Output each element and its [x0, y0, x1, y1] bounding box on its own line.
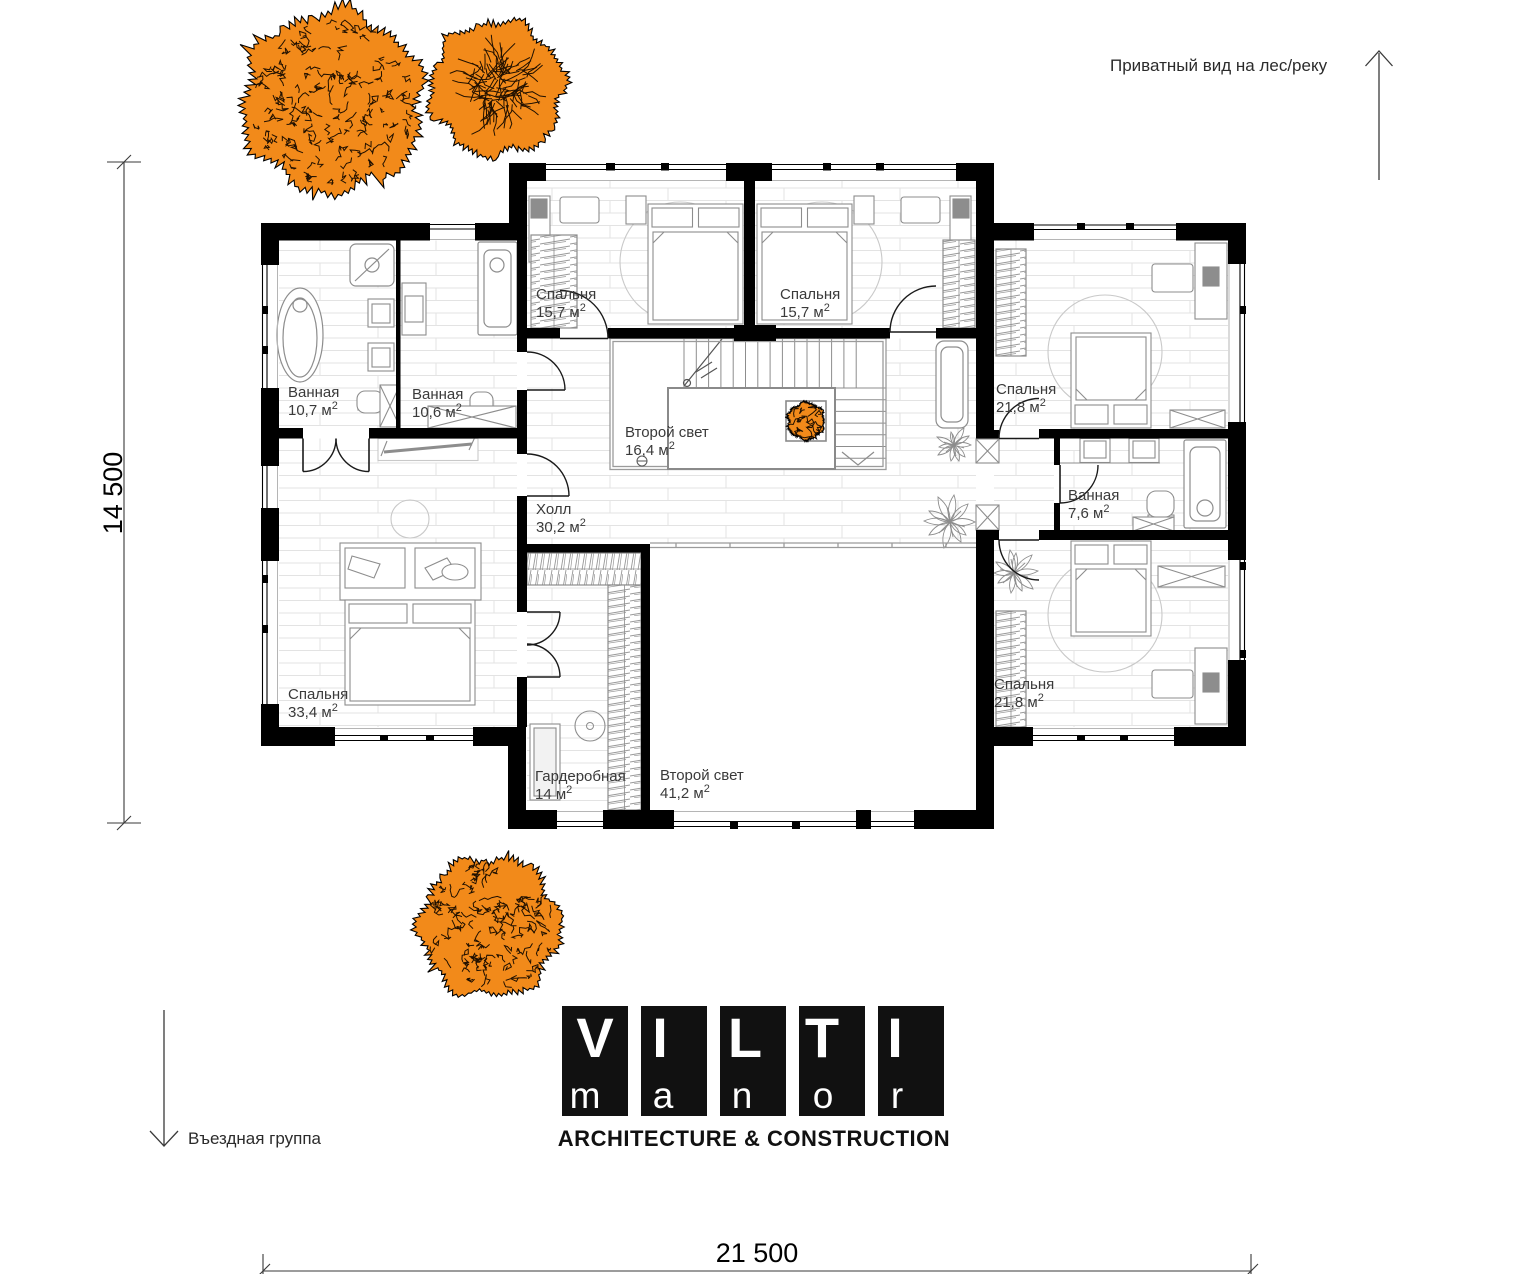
svg-text:Приватный вид на лес/реку: Приватный вид на лес/реку — [1110, 56, 1328, 75]
svg-text:T: T — [805, 1006, 839, 1069]
svg-text:Въездная группа: Въездная группа — [188, 1129, 322, 1148]
svg-text:33,4 м2: 33,4 м2 — [288, 702, 338, 721]
svg-text:Спальня: Спальня — [994, 676, 1054, 693]
svg-text:ARCHITECTURE & CONSTRUCTION: ARCHITECTURE & CONSTRUCTION — [558, 1126, 950, 1151]
svg-text:Холл: Холл — [536, 501, 571, 518]
svg-text:Второй свет: Второй свет — [625, 424, 709, 441]
svg-text:14 500: 14 500 — [98, 452, 128, 535]
svg-text:n: n — [732, 1075, 753, 1116]
svg-text:21 500: 21 500 — [716, 1238, 799, 1268]
svg-text:7,6 м2: 7,6 м2 — [1068, 503, 1109, 522]
svg-text:V: V — [576, 1006, 613, 1069]
svg-text:15,7 м2: 15,7 м2 — [536, 302, 586, 321]
svg-text:41,2 м2: 41,2 м2 — [660, 783, 710, 802]
svg-text:Ванная: Ванная — [412, 386, 463, 403]
svg-text:15,7 м2: 15,7 м2 — [780, 302, 830, 321]
svg-text:r: r — [891, 1075, 903, 1116]
svg-text:m: m — [570, 1075, 601, 1116]
svg-text:L: L — [728, 1006, 762, 1069]
svg-text:Спальня: Спальня — [996, 381, 1056, 398]
svg-text:I: I — [652, 1006, 668, 1069]
svg-text:Спальня: Спальня — [288, 686, 348, 703]
svg-text:Второй свет: Второй свет — [660, 767, 744, 784]
svg-text:a: a — [653, 1075, 674, 1116]
svg-text:16,4 м2: 16,4 м2 — [625, 440, 675, 459]
svg-text:Гардеробная: Гардеробная — [535, 768, 626, 785]
svg-text:21,8 м2: 21,8 м2 — [994, 692, 1044, 711]
svg-text:Спальня: Спальня — [780, 286, 840, 303]
svg-text:Ванная: Ванная — [1068, 487, 1119, 504]
svg-text:30,2 м2: 30,2 м2 — [536, 517, 586, 536]
svg-text:I: I — [887, 1006, 903, 1069]
svg-text:o: o — [813, 1075, 834, 1116]
svg-text:Ванная: Ванная — [288, 384, 339, 401]
svg-text:10,6 м2: 10,6 м2 — [412, 402, 462, 421]
svg-text:21,8 м2: 21,8 м2 — [996, 397, 1046, 416]
svg-text:Спальня: Спальня — [536, 286, 596, 303]
svg-text:10,7 м2: 10,7 м2 — [288, 400, 338, 419]
